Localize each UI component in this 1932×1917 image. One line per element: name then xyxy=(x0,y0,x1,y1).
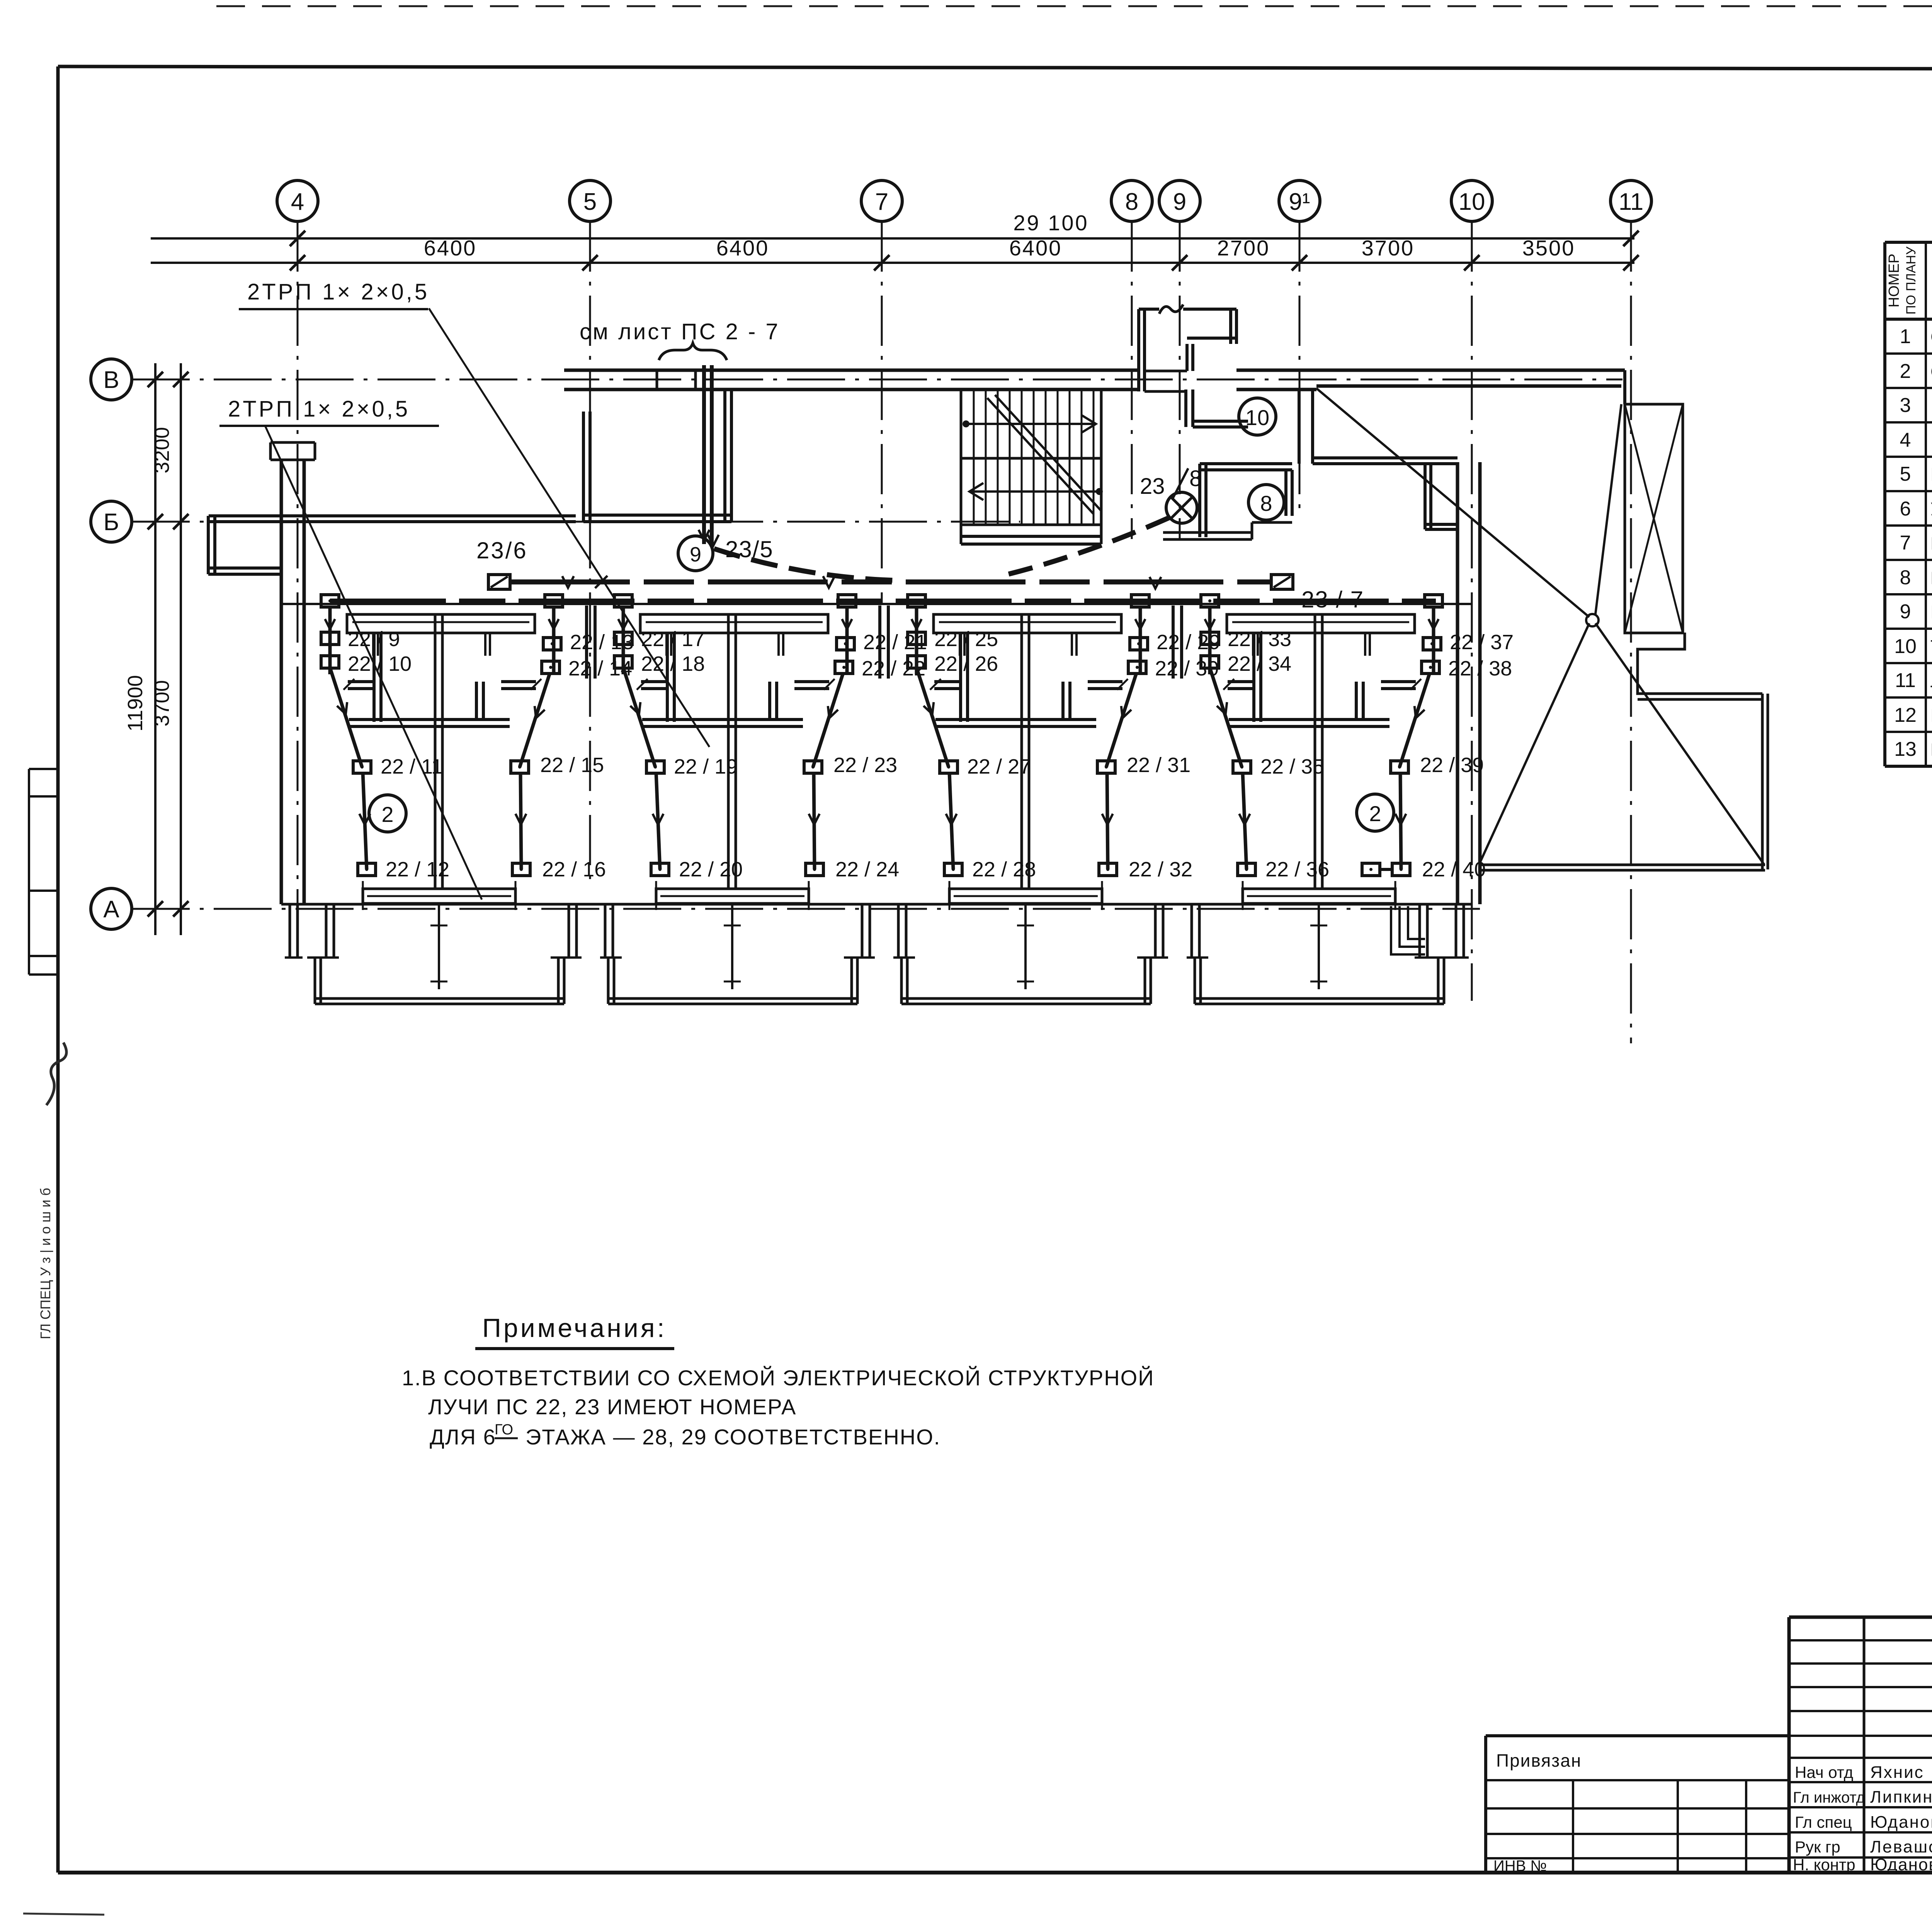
svg-text:23: 23 xyxy=(1140,474,1165,499)
svg-text:8: 8 xyxy=(1900,566,1911,589)
svg-text:8: 8 xyxy=(1260,491,1272,515)
svg-text:6400: 6400 xyxy=(424,236,477,260)
svg-text:22 / 36: 22 / 36 xyxy=(1265,858,1329,881)
svg-text:6400: 6400 xyxy=(1009,236,1062,260)
svg-text:3700: 3700 xyxy=(1362,236,1415,260)
svg-text:ЛЕСТНИЧНО-ЛИФТОВОЙ ХОЛЛ: ЛЕСТНИЧНО-ЛИФТОВОЙ ХОЛЛ xyxy=(1930,670,1932,691)
svg-text:4: 4 xyxy=(1900,429,1911,451)
svg-text:22 / 15: 22 / 15 xyxy=(540,754,604,777)
svg-text:9: 9 xyxy=(1900,600,1911,623)
svg-text:23/6: 23/6 xyxy=(476,538,528,563)
svg-text:22 / 17: 22 / 17 xyxy=(641,628,705,651)
svg-text:см лист ПС 2 - 7: см лист ПС 2 - 7 xyxy=(580,319,780,344)
svg-text:ТАМБУР: ТАМБУР xyxy=(1930,637,1932,657)
svg-text:ИНВ №: ИНВ № xyxy=(1493,1857,1547,1874)
svg-text:Б: Б xyxy=(104,509,119,536)
svg-text:22 / 19: 22 / 19 xyxy=(674,755,738,778)
svg-text:22 / 9: 22 / 9 xyxy=(348,628,400,651)
svg-text:22 / 39: 22 / 39 xyxy=(1420,754,1484,777)
svg-text:Гл спец: Гл спец xyxy=(1795,1813,1852,1831)
svg-text:22 / 40: 22 / 40 xyxy=(1422,858,1486,881)
svg-text:22 / 23: 22 / 23 xyxy=(833,754,897,777)
svg-text:5: 5 xyxy=(583,189,597,215)
svg-text:Юданов: Юданов xyxy=(1870,1813,1932,1832)
svg-text:8: 8 xyxy=(1125,189,1138,215)
svg-text:ГЛ СПЕЦ У з | и о ш и б: ГЛ СПЕЦ У з | и о ш и б xyxy=(37,1188,53,1339)
svg-text:4: 4 xyxy=(291,189,304,215)
svg-text:2: 2 xyxy=(1900,360,1911,383)
svg-text:22 / 12: 22 / 12 xyxy=(386,858,449,881)
svg-text:2700: 2700 xyxy=(1217,236,1270,260)
svg-text:13: 13 xyxy=(1894,738,1917,760)
svg-text:22 / 26: 22 / 26 xyxy=(934,652,998,675)
svg-text:Гл инжотд: Гл инжотд xyxy=(1793,1789,1865,1806)
svg-text:Липкинд: Липкинд xyxy=(1870,1788,1932,1806)
svg-text:ЭТАЖА — 28, 29 СООТВЕТСТ: ЭТАЖА — 28, 29 СООТВЕТСТВЕННО. xyxy=(526,1425,940,1449)
svg-text:Рук гр: Рук гр xyxy=(1795,1838,1840,1856)
svg-text:1.В СООТВЕТСТВИИ СО СХЕ: 1.В СООТВЕТСТВИИ СО СХЕМОЙ ЭЛЕКТРИЧЕСКОЙ… xyxy=(402,1366,1155,1390)
svg-text:22 / 16: 22 / 16 xyxy=(542,858,606,881)
svg-text:22 / 10: 22 / 10 xyxy=(348,652,412,675)
svg-text:3: 3 xyxy=(1900,394,1911,417)
svg-text:2: 2 xyxy=(1369,801,1381,826)
svg-text:СПАЛЬНЫЕ КОМНАТЫ НА 2 МЕСТА: СПАЛЬНЫЕ КОМНАТЫ НА 2 МЕСТА 2А xyxy=(1930,362,1932,382)
svg-text:2: 2 xyxy=(381,802,393,827)
svg-text:ПОМЕЩЕНИЕ С МУСОРОПРИЁМНИКОМ: ПОМЕЩЕНИЕ С МУСОРОПРИЁМНИКОМ xyxy=(1930,568,1932,588)
svg-text:22 / 33: 22 / 33 xyxy=(1228,628,1291,651)
svg-text:10: 10 xyxy=(1459,189,1485,215)
svg-text:ЛУЧИ ПС 22, 23 ИМЕЮТ Н: ЛУЧИ ПС 22, 23 ИМЕЮТ НОМЕРА xyxy=(428,1395,796,1419)
svg-text:КЛАДОВАЯ УБОРОЧНОГО ИНВЕНТАРЯ: КЛАДОВАЯ УБОРОЧНОГО ИНВЕНТАРЯ xyxy=(1930,533,1932,553)
svg-text:В: В xyxy=(103,367,119,393)
svg-text:Привязан: Привязан xyxy=(1496,1750,1582,1771)
svg-text:6: 6 xyxy=(1900,498,1911,520)
svg-text:ПОМЕЩЕНИЕ ДЛЯ ЧИСТКИ И ГЛАЖЕНИ: ПОМЕЩЕНИЕ ДЛЯ ЧИСТКИ И ГЛАЖЕНИЯ xyxy=(1930,740,1932,760)
svg-text:22 / 25: 22 / 25 xyxy=(934,628,998,651)
svg-text:10: 10 xyxy=(1245,405,1269,430)
svg-text:8: 8 xyxy=(1189,466,1202,491)
svg-text:22 / 28: 22 / 28 xyxy=(972,858,1036,881)
svg-text:УБОРНАЯ ОБЩЕГО ПОЛЬЗОВАНИЯ: УБОРНАЯ ОБЩЕГО ПОЛЬЗОВАНИЯ xyxy=(1930,499,1932,520)
svg-text:22 / 20: 22 / 20 xyxy=(679,858,743,881)
svg-text:2ТРП 1× 2×0,5: 2ТРП 1× 2×0,5 xyxy=(228,396,410,422)
svg-text:А: А xyxy=(103,896,119,923)
svg-text:КОРИДОРЫ: КОРИДОРЫ xyxy=(1930,602,1932,623)
svg-text:9: 9 xyxy=(1173,189,1186,215)
svg-text:11900: 11900 xyxy=(124,675,147,731)
svg-text:Примечания:: Примечания: xyxy=(482,1313,667,1343)
svg-text:Юданова: Юданова xyxy=(1870,1855,1932,1874)
svg-text:Нач отд: Нач отд xyxy=(1795,1763,1853,1781)
svg-text:Левашова: Левашова xyxy=(1870,1837,1932,1856)
svg-text:22 / 38: 22 / 38 xyxy=(1448,657,1512,680)
svg-text:22 / 27: 22 / 27 xyxy=(967,755,1031,778)
svg-text:10: 10 xyxy=(1894,635,1917,658)
svg-text:23/5: 23/5 xyxy=(725,536,774,562)
svg-text:9¹: 9¹ xyxy=(1289,189,1310,215)
svg-text:22 / 24: 22 / 24 xyxy=(835,858,899,881)
svg-text:Н. контр: Н. контр xyxy=(1793,1856,1855,1874)
svg-text:11: 11 xyxy=(1895,669,1916,692)
svg-text:22 / 37: 22 / 37 xyxy=(1450,631,1514,654)
svg-text:КЛАДОВАЯ ДЛЯ ЧИСТОГО БЕЛЬЯ: КЛАДОВАЯ ДЛЯ ЧИСТОГО БЕЛЬЯ xyxy=(1930,464,1932,485)
svg-text:22 / 34: 22 / 34 xyxy=(1228,652,1291,675)
svg-text:7: 7 xyxy=(875,189,888,215)
svg-text:СПАЛЬНЫЕ КОМНАТЫ НА 1МЕСТО 1А: СПАЛЬНЫЕ КОМНАТЫ НА 1МЕСТО 1А xyxy=(1930,327,1932,347)
svg-text:1: 1 xyxy=(1900,325,1911,348)
svg-text:КОМНАТА ПЕРСОНАЛА: КОМНАТА ПЕРСОНАЛА xyxy=(1930,706,1932,726)
svg-text:22 / 31: 22 / 31 xyxy=(1127,754,1190,777)
svg-text:ГО: ГО xyxy=(495,1422,513,1438)
svg-text:Яхнис: Яхнис xyxy=(1870,1763,1924,1782)
svg-text:22 / 35: 22 / 35 xyxy=(1260,755,1324,778)
svg-text:НОМЕР: НОМЕР xyxy=(1886,253,1902,307)
svg-text:9: 9 xyxy=(690,543,701,566)
svg-text:2ТРП 1× 2×0,5: 2ТРП 1× 2×0,5 xyxy=(247,279,429,304)
svg-text:11: 11 xyxy=(1619,189,1643,215)
svg-text:5: 5 xyxy=(1900,463,1911,485)
svg-text:22 / 11: 22 / 11 xyxy=(381,755,443,778)
svg-text:6400: 6400 xyxy=(716,236,769,260)
svg-text:3200: 3200 xyxy=(150,427,173,473)
svg-text:3500: 3500 xyxy=(1522,236,1575,260)
svg-text:ПО ПЛАНУ: ПО ПЛАНУ xyxy=(1904,247,1918,315)
svg-text:22 / 18: 22 / 18 xyxy=(641,652,705,675)
svg-text:12: 12 xyxy=(1894,704,1917,726)
svg-text:22 / 32: 22 / 32 xyxy=(1129,858,1192,881)
svg-text:ДЛЯ 6: ДЛЯ 6 xyxy=(430,1425,496,1449)
svg-text:3700: 3700 xyxy=(150,680,173,726)
svg-text:7: 7 xyxy=(1900,532,1911,554)
svg-text:29 100: 29 100 xyxy=(1013,211,1088,235)
